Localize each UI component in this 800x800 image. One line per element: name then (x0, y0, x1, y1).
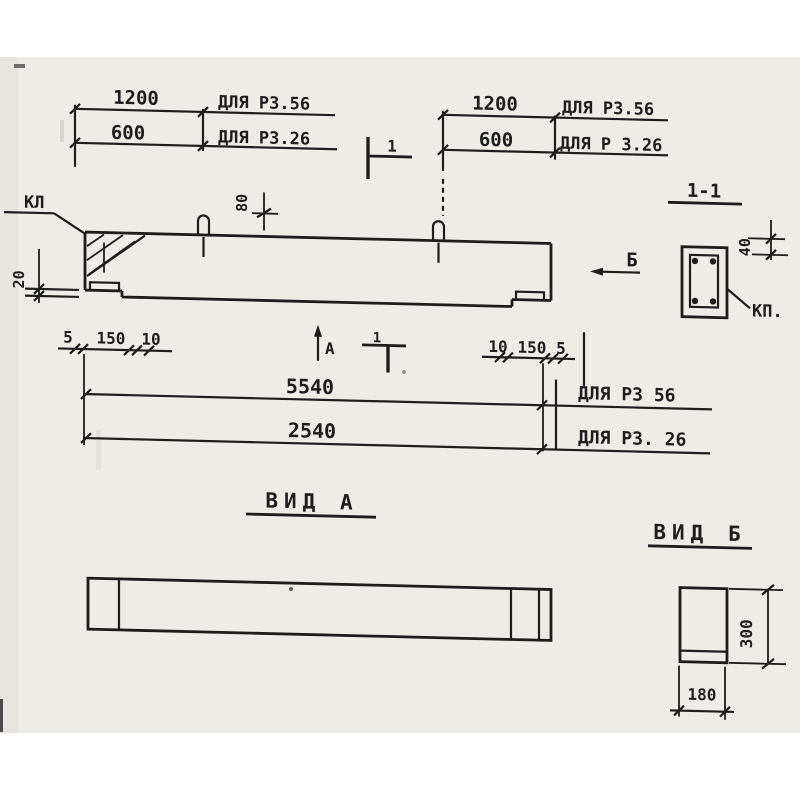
dim-600-right-note: ДЛЯ Р 3.26 (560, 134, 662, 156)
dim-5540-note: ДЛЯ РЗ 56 (578, 383, 676, 406)
dim-150-left: 150 (97, 328, 126, 348)
dim-20: 20 (10, 270, 28, 288)
dim-10-left: 10 (141, 329, 160, 348)
dim-5-left: 5 (63, 328, 73, 347)
dim-80: 80 (233, 194, 251, 212)
paper-streak (60, 120, 64, 142)
dim-180: 180 (688, 685, 717, 705)
section-label-1-bottom: 1 (373, 330, 381, 346)
view-a-title: ВИД А (265, 488, 358, 514)
dim-600-right: 600 (479, 129, 513, 152)
paper-speck (14, 64, 25, 68)
beam-drawing-svg: 1200 ДЛЯ РЗ.56 600 ДЛЯ РЗ.26 1200 ДЛЯ РЗ… (0, 0, 800, 800)
dim-2540: 2540 (288, 418, 336, 443)
dim-1200-left: 1200 (113, 87, 159, 110)
view-b-letter: Б (626, 249, 637, 271)
view-b-title: ВИД Б (653, 520, 746, 546)
section-label-1-top: 1 (387, 136, 397, 155)
dim-2540-note: ДЛЯ РЗ. 26 (578, 427, 686, 451)
scan-edge-mark (0, 699, 3, 732)
dim-600-left: 600 (111, 122, 145, 145)
view-a-letter: А (325, 339, 335, 358)
paper-streak (96, 430, 101, 470)
view-b-title-group: ВИД Б (648, 520, 752, 549)
dim-1200-right-note: ДЛЯ РЗ.56 (562, 98, 654, 120)
scan-edge-shade (0, 57, 18, 733)
paper-speck (289, 587, 293, 591)
dim-40: 40 (736, 238, 754, 256)
dim-600-left-note: ДЛЯ РЗ.26 (218, 127, 310, 149)
kp-label: КП. (752, 301, 783, 322)
dim-1200-left-note: ДЛЯ РЗ.56 (218, 92, 310, 114)
dim-1200-right: 1200 (472, 93, 518, 116)
dim-150-right: 150 (518, 338, 547, 358)
paper-speck (402, 370, 406, 374)
dim-300: 300 (737, 619, 756, 648)
drawing-sheet: 1200 ДЛЯ РЗ.56 600 ДЛЯ РЗ.26 1200 ДЛЯ РЗ… (0, 0, 800, 800)
section-title: 1-1 (687, 180, 721, 203)
dim-5540: 5540 (286, 374, 334, 399)
kl-label: КЛ (24, 193, 44, 213)
